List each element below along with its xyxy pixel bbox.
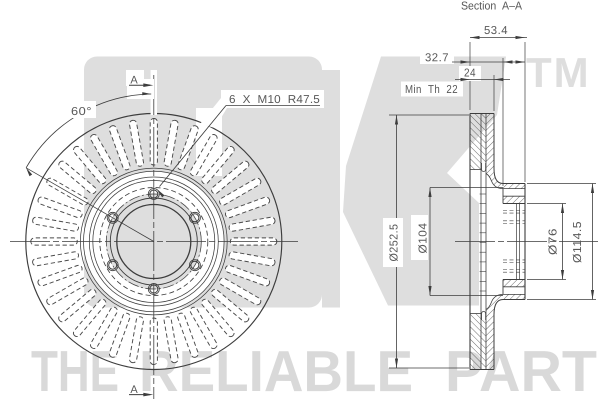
svg-text:THE: THE (31, 339, 119, 400)
svg-text:Ø76: Ø76 (548, 228, 560, 255)
svg-text:RELIABLE: RELIABLE (139, 339, 413, 400)
svg-text:Ø114.5: Ø114.5 (572, 221, 584, 263)
svg-text:PART: PART (445, 339, 597, 400)
svg-text:32.7: 32.7 (425, 52, 449, 64)
svg-text:Min Th 22: Min Th 22 (405, 84, 458, 96)
svg-text:A: A (130, 74, 138, 86)
svg-text:TM: TM (526, 49, 591, 96)
svg-text:53.4: 53.4 (484, 25, 508, 37)
svg-text:A: A (130, 384, 138, 396)
svg-text:24: 24 (464, 68, 476, 80)
svg-text:6 X M10 R47.5: 6 X M10 R47.5 (229, 94, 320, 106)
svg-text:Ø252.5: Ø252.5 (389, 224, 401, 262)
svg-text:Ø104: Ø104 (418, 222, 430, 253)
svg-text:60°: 60° (71, 106, 92, 118)
svg-text:Section A–A: Section A–A (461, 1, 522, 13)
